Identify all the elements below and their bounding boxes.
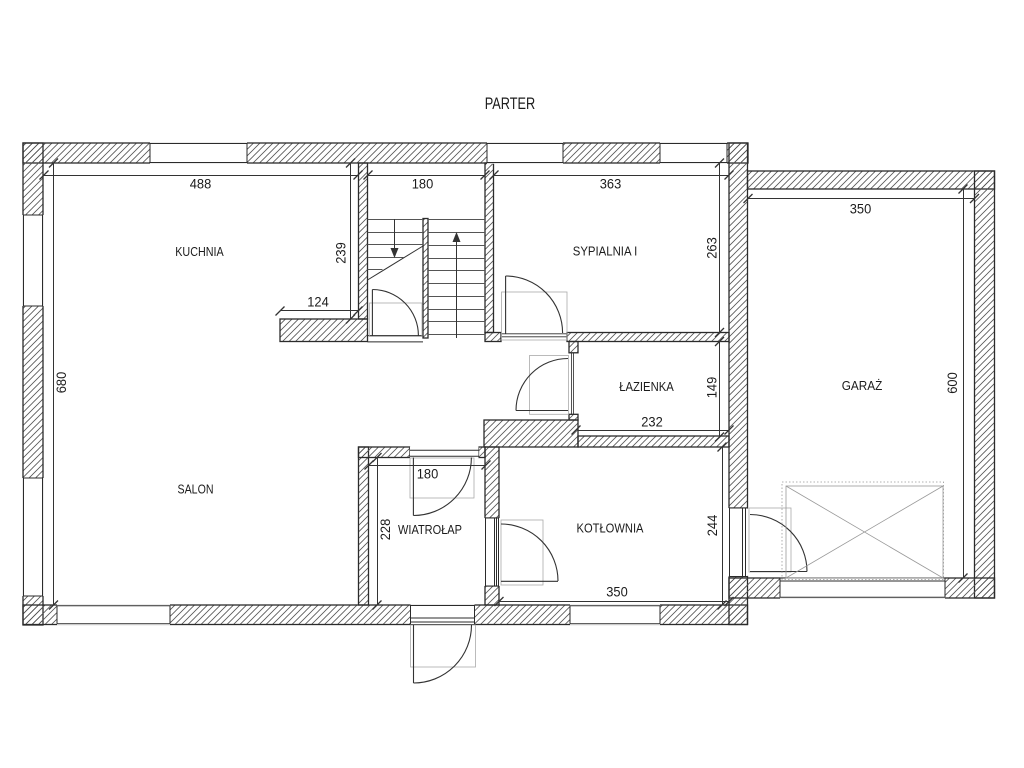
svg-text:350: 350 (606, 585, 628, 600)
svg-text:SYPIALNIA I: SYPIALNIA I (573, 245, 638, 259)
svg-text:680: 680 (54, 372, 69, 394)
svg-text:363: 363 (600, 177, 622, 192)
svg-text:232: 232 (641, 415, 663, 430)
svg-text:149: 149 (705, 377, 720, 399)
svg-text:239: 239 (334, 242, 349, 264)
svg-text:488: 488 (190, 177, 212, 192)
svg-text:GARAŻ: GARAŻ (842, 379, 883, 393)
svg-text:180: 180 (412, 177, 434, 192)
svg-text:SALON: SALON (178, 483, 214, 497)
svg-text:ŁAZIENKA: ŁAZIENKA (619, 380, 674, 394)
svg-text:KUCHNIA: KUCHNIA (175, 245, 224, 259)
svg-text:350: 350 (850, 202, 872, 217)
svg-text:KOTŁOWNIA: KOTŁOWNIA (577, 522, 645, 536)
svg-text:180: 180 (417, 467, 439, 482)
svg-text:600: 600 (945, 372, 960, 394)
svg-text:244: 244 (705, 514, 720, 536)
svg-text:WIATROŁAP: WIATROŁAP (398, 523, 462, 537)
svg-text:PARTER: PARTER (485, 94, 536, 113)
svg-text:124: 124 (307, 295, 329, 310)
svg-text:228: 228 (378, 519, 393, 541)
svg-text:263: 263 (705, 237, 720, 259)
